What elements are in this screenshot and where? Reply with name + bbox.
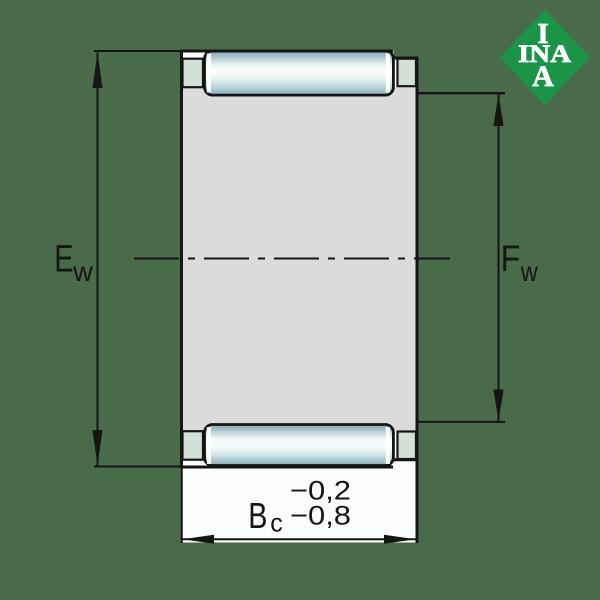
svg-text:F: F [501,238,521,279]
svg-text:w: w [72,256,93,287]
svg-text:−0,8: −0,8 [290,501,351,531]
svg-text:B: B [248,495,267,536]
svg-text:A: A [532,60,554,93]
svg-text:w: w [520,256,538,287]
svg-text:E: E [54,239,73,281]
svg-text:c: c [270,508,283,538]
